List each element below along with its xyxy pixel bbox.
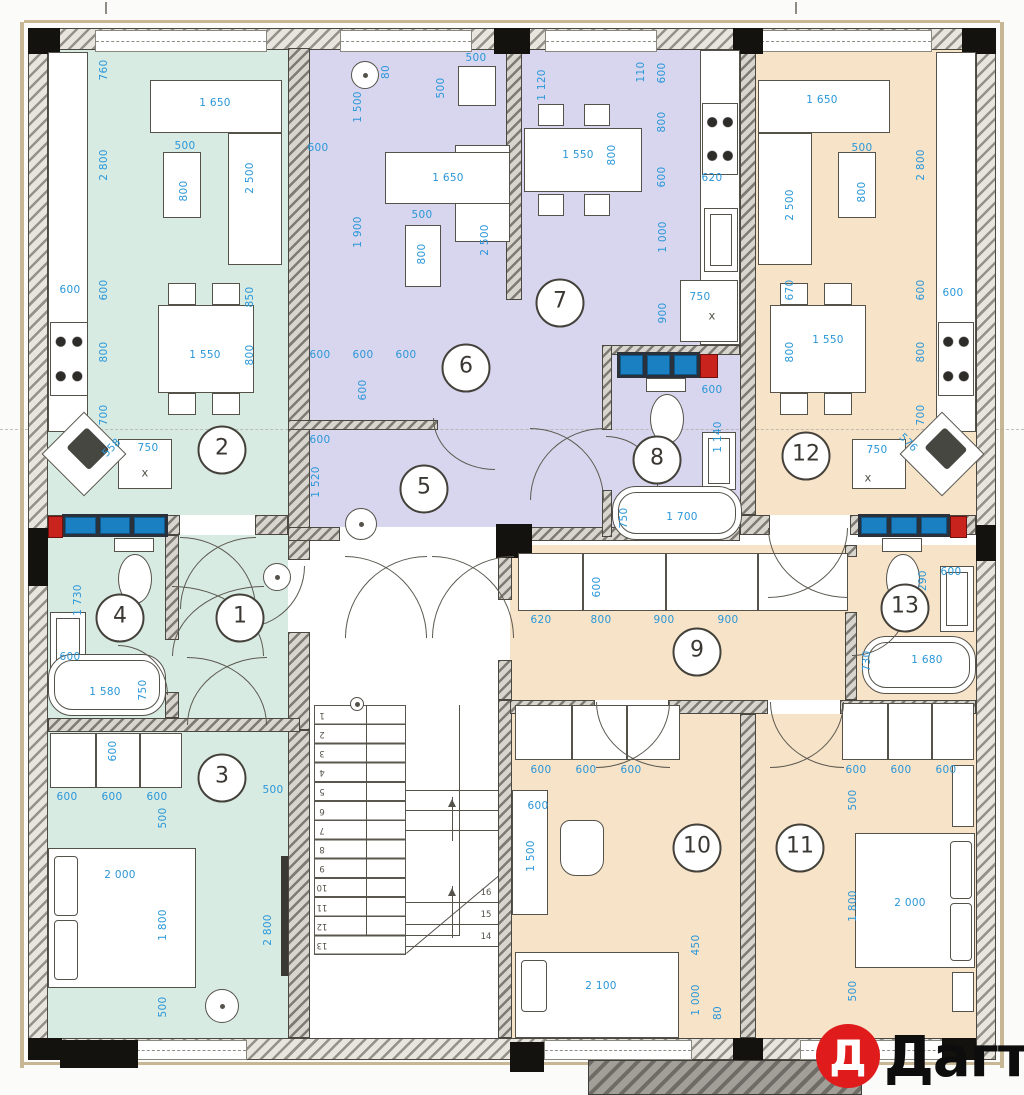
column <box>60 1040 138 1068</box>
dim-label: 500 <box>412 210 433 221</box>
step-number: 1 <box>319 710 324 720</box>
dim-label: 110 <box>636 62 647 83</box>
tile-counter <box>617 352 700 378</box>
dim-label: 600 <box>531 765 552 776</box>
dim-label: 1 680 <box>911 655 943 666</box>
window <box>95 30 267 52</box>
dim-label: 600 <box>891 765 912 776</box>
dim-label: 600 <box>396 350 417 361</box>
room-number: 4 <box>96 594 145 643</box>
tile-counter <box>62 514 168 537</box>
dim-label: 800 <box>417 244 428 265</box>
dim-label: 800 <box>591 615 612 626</box>
ceiling-lamp-icon <box>205 989 239 1023</box>
room-number: 1 <box>216 594 265 643</box>
dim-label: 600 <box>57 792 78 803</box>
chair <box>780 393 808 415</box>
boiler-icon <box>700 354 718 378</box>
step-number: 13 <box>317 940 328 950</box>
dim-label: 450 <box>691 935 702 956</box>
chair <box>212 393 240 415</box>
watermark-text: Дагти <box>884 1030 1024 1086</box>
dim-label: 1 700 <box>666 512 698 523</box>
step-number: 4 <box>319 767 324 777</box>
dim-label: 600 <box>846 765 867 776</box>
dim-label: 1 730 <box>73 584 84 616</box>
dim-label: 600 <box>916 280 927 301</box>
room-number: 10 <box>673 824 722 873</box>
dim-label: 1 550 <box>562 150 594 161</box>
dim-label: 730 <box>862 651 873 672</box>
dim-label: 750 <box>867 445 888 456</box>
chair <box>824 393 852 415</box>
axis-tick <box>105 2 107 14</box>
dim-label: 600 <box>60 652 81 663</box>
dim-label: 600 <box>108 741 119 762</box>
dim-label: 1 550 <box>812 335 844 346</box>
wall <box>288 527 340 541</box>
stair-step <box>406 790 498 791</box>
chair <box>212 283 240 305</box>
dim-label: 600 <box>310 435 331 446</box>
column <box>733 1038 763 1060</box>
pillow <box>950 841 972 899</box>
step-number: 5 <box>319 786 324 796</box>
dim-label: 900 <box>718 615 739 626</box>
dim-label: 620 <box>702 173 723 184</box>
step-number: 8 <box>319 844 324 854</box>
dim-label: 600 <box>99 280 110 301</box>
dim-label: 600 <box>310 350 331 361</box>
wall <box>740 714 756 1038</box>
chair <box>824 283 852 305</box>
watermark-logo: Д <box>816 1024 880 1088</box>
wall <box>255 515 288 535</box>
toilet-icon <box>114 538 154 552</box>
dim-label: 750 <box>138 443 159 454</box>
wall <box>288 48 310 560</box>
column <box>494 28 530 54</box>
column <box>962 28 996 54</box>
dim-label: 600 <box>657 167 668 188</box>
chair <box>538 104 564 126</box>
room-number: 6 <box>442 344 491 393</box>
axis-tick <box>795 2 797 14</box>
floor-plan: 1 2 3 4 5 6 7 8 9 10 11 12 13 16 15 14 7… <box>0 0 1024 1095</box>
step-number: 11 <box>317 902 328 912</box>
dim-label: 600 <box>576 765 597 776</box>
chair <box>168 283 196 305</box>
wall <box>668 700 768 714</box>
wall <box>288 420 438 430</box>
dim-label: 1 550 <box>189 350 221 361</box>
dim-label: 900 <box>654 615 675 626</box>
dim-label: 750 <box>619 508 630 529</box>
dim-label: 600 <box>941 567 962 578</box>
dim-label: 80 <box>713 1006 724 1020</box>
dim-label: 700 <box>916 405 927 426</box>
dim-label: 1 900 <box>353 216 364 248</box>
dim-label: 850 <box>245 287 256 308</box>
step-number: 2 <box>319 729 324 739</box>
dim-label: 500 <box>852 143 873 154</box>
pillow <box>521 960 547 1012</box>
dim-label: 750 <box>690 292 711 303</box>
washer-mark: x <box>141 467 148 479</box>
boiler-icon <box>950 516 967 538</box>
dim-label: 1 650 <box>199 98 231 109</box>
window <box>544 1040 692 1060</box>
dim-label: 800 <box>916 342 927 363</box>
dim-label: 500 <box>158 997 169 1018</box>
dim-label: 500 <box>175 141 196 152</box>
dim-label: 2 500 <box>480 224 491 256</box>
stair-direction-arrow <box>452 797 453 841</box>
pillow <box>54 856 78 916</box>
dim-label: 1 650 <box>806 95 838 106</box>
dim-label: 800 <box>607 145 618 166</box>
toilet-icon <box>646 378 686 392</box>
wardrobe <box>952 972 974 1012</box>
step-number: 3 <box>319 748 324 758</box>
dim-label: 600 <box>147 792 168 803</box>
room-number: 12 <box>782 432 831 481</box>
dim-label: 1 500 <box>353 91 364 123</box>
dim-label: 2 100 <box>585 981 617 992</box>
washer-mark: x <box>864 472 871 484</box>
step-number: 12 <box>317 921 328 931</box>
room-number: 5 <box>400 465 449 514</box>
dim-label: 2 800 <box>916 149 927 181</box>
wall <box>602 345 612 430</box>
window <box>340 30 472 52</box>
room-number: 7 <box>536 279 585 328</box>
dim-label: 80 <box>381 65 392 79</box>
dim-label: 1 000 <box>658 221 669 253</box>
step-number: 10 <box>317 882 328 892</box>
wall <box>498 660 512 700</box>
stove-icon <box>702 103 738 175</box>
wall <box>288 730 310 1038</box>
dim-label: 500 <box>466 53 487 64</box>
stair-direction-arrow <box>452 886 453 938</box>
dim-label: 2 000 <box>894 898 926 909</box>
chair <box>584 194 610 216</box>
stove-icon <box>938 322 974 396</box>
dim-label: 500 <box>848 981 859 1002</box>
dim-label: 2 500 <box>245 162 256 194</box>
column <box>28 528 48 586</box>
dim-label: 1 800 <box>848 890 859 922</box>
column <box>28 28 60 54</box>
dim-label: 1 650 <box>432 173 464 184</box>
desk-chair <box>560 820 604 876</box>
dim-label: 2 800 <box>263 914 274 946</box>
dim-label: 500 <box>848 790 859 811</box>
dim-label: 500 <box>263 785 284 796</box>
facade-line <box>24 20 1000 23</box>
dim-label: 500 <box>158 808 169 829</box>
dim-label: 900 <box>658 303 669 324</box>
tile-counter <box>858 514 950 537</box>
floor-lamp-icon <box>351 61 379 89</box>
column <box>976 525 996 561</box>
dim-label: 800 <box>857 182 868 203</box>
room-number: 11 <box>776 824 825 873</box>
pillow <box>950 903 972 961</box>
sofa <box>758 80 890 133</box>
window <box>545 30 657 52</box>
dim-label: 1 140 <box>713 421 724 453</box>
sink-icon <box>704 208 738 272</box>
dim-label: 800 <box>785 342 796 363</box>
room-number: 3 <box>198 754 247 803</box>
stove-icon <box>50 322 88 396</box>
dim-label: 600 <box>621 765 642 776</box>
dim-label: 2 800 <box>99 149 110 181</box>
dim-label: 800 <box>245 345 256 366</box>
dim-label: 600 <box>60 285 81 296</box>
boiler-icon <box>48 516 63 538</box>
room-number: 8 <box>633 436 682 485</box>
dim-label: 800 <box>99 342 110 363</box>
step-number: 6 <box>319 806 324 816</box>
wall <box>498 700 512 1038</box>
side-table <box>458 66 496 106</box>
washer-mark: x <box>708 310 715 322</box>
wall <box>740 515 770 535</box>
dim-label: 2 000 <box>104 870 136 881</box>
dim-label: 600 <box>702 385 723 396</box>
tv-icon <box>281 856 288 976</box>
dim-label: 600 <box>943 288 964 299</box>
axis-line <box>0 429 1024 430</box>
dim-label: 1 800 <box>158 909 169 941</box>
dim-label: 600 <box>592 577 603 598</box>
sofa <box>228 133 282 265</box>
room-number: 2 <box>198 426 247 475</box>
dim-label: 700 <box>99 405 110 426</box>
step-number: 16 <box>481 888 492 898</box>
wall <box>165 692 179 718</box>
window <box>760 30 932 52</box>
dim-label: 800 <box>179 181 190 202</box>
toilet-icon <box>882 538 922 552</box>
column <box>28 1038 62 1060</box>
facade-line <box>20 22 24 1068</box>
step-number: 7 <box>319 825 324 835</box>
dim-label: 1 580 <box>89 687 121 698</box>
chair <box>168 393 196 415</box>
stair-step <box>406 946 498 947</box>
dim-label: 1 520 <box>311 466 322 498</box>
dim-label: 620 <box>531 615 552 626</box>
column <box>510 1042 544 1072</box>
wardrobe <box>842 703 974 760</box>
dim-label: 600 <box>528 801 549 812</box>
step-number: 9 <box>319 863 324 873</box>
pillow <box>54 920 78 980</box>
ceiling-lamp-icon <box>345 508 377 540</box>
dim-label: 1 120 <box>537 69 548 101</box>
dim-label: 600 <box>657 63 668 84</box>
wall <box>740 48 756 515</box>
dim-label: 1 500 <box>526 840 537 872</box>
chair <box>538 194 564 216</box>
dim-label: 760 <box>99 60 110 81</box>
dim-label: 670 <box>785 280 796 301</box>
room-number: 9 <box>673 628 722 677</box>
wall <box>288 632 310 730</box>
dim-label: 600 <box>936 765 957 776</box>
ceiling-lamp-icon <box>350 697 364 711</box>
dim-label: 600 <box>353 350 374 361</box>
dim-label: 750 <box>138 680 149 701</box>
dim-label: 1 000 <box>691 984 702 1016</box>
chair <box>584 104 610 126</box>
room-number: 13 <box>881 584 930 633</box>
dim-label: 500 <box>436 78 447 99</box>
dim-label: 2 500 <box>785 189 796 221</box>
facade-line <box>1000 22 1004 1068</box>
dim-label: 600 <box>102 792 123 803</box>
step-number: 15 <box>481 910 492 920</box>
dim-label: 600 <box>358 380 369 401</box>
step-number: 14 <box>481 932 492 942</box>
dim-label: 600 <box>308 143 329 154</box>
dim-label: 800 <box>657 112 668 133</box>
